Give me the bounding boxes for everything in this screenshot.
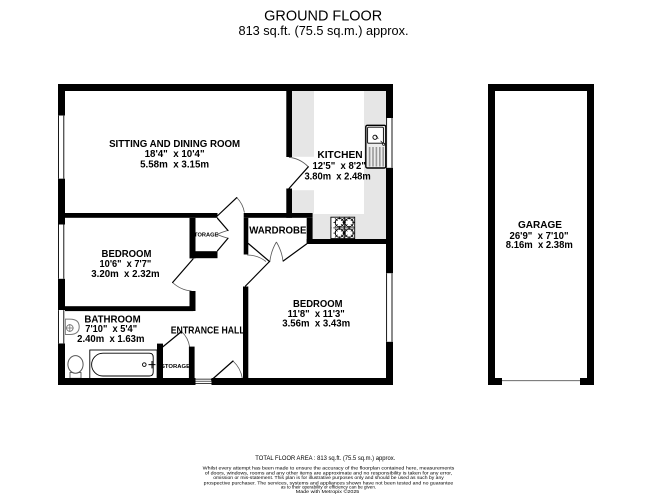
svg-text:STORAGE: STORAGE [161, 364, 190, 370]
svg-text:12'5" x 8'2": 12'5" x 8'2" [313, 161, 366, 172]
svg-text:2.40m x 1.63m: 2.40m x 1.63m [77, 334, 145, 345]
svg-text:5.58m x 3.15m: 5.58m x 3.15m [140, 160, 209, 171]
svg-text:WARDROBE: WARDROBE [249, 225, 307, 236]
svg-text:ENTRANCE HALL: ENTRANCE HALL [171, 326, 245, 337]
svg-text:GARAGE: GARAGE [518, 220, 562, 231]
svg-text:8.16m x 2.38m: 8.16m x 2.38m [506, 240, 573, 251]
svg-text:GROUND FLOOR: GROUND FLOOR [264, 9, 382, 25]
svg-text:3.20m x 2.32m: 3.20m x 2.32m [91, 269, 160, 280]
svg-text:813 sq.ft. (75.5 sq.m.) approx: 813 sq.ft. (75.5 sq.m.) approx. [239, 24, 409, 38]
svg-text:TOTAL FLOOR AREA : 813 sq.ft.: TOTAL FLOOR AREA : 813 sq.ft. (75.5 sq.m… [255, 455, 395, 462]
svg-text:3.56m x 3.43m: 3.56m x 3.43m [282, 319, 350, 330]
svg-text:Made with Metropix ©2025: Made with Metropix ©2025 [296, 488, 360, 494]
svg-text:KITCHEN: KITCHEN [317, 150, 362, 161]
svg-text:3.80m x 2.48m: 3.80m x 2.48m [304, 172, 371, 183]
